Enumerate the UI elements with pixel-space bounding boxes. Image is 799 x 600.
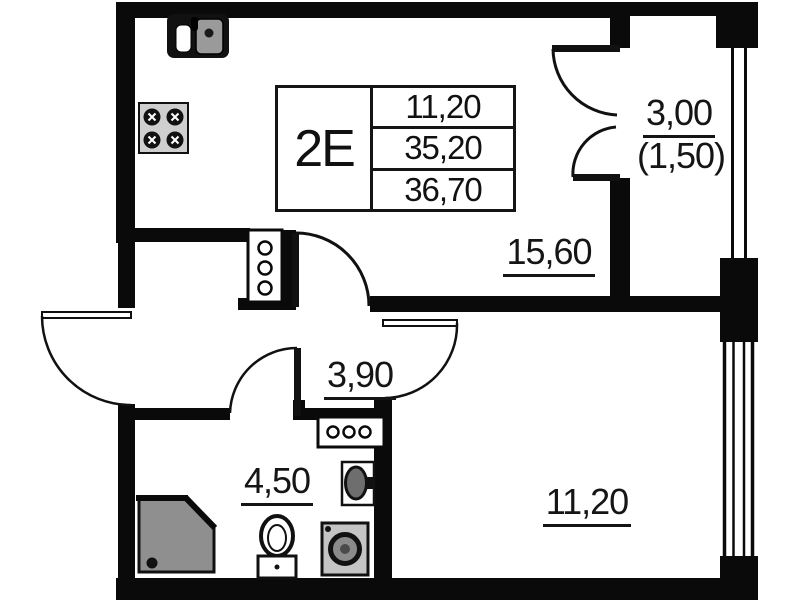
unit-area-value: 11,20 xyxy=(405,88,480,126)
balcony-reduced-area-label: (1,50) xyxy=(626,135,736,177)
bathroom-door xyxy=(230,348,301,416)
hallway-area-value: 3,90 xyxy=(324,354,396,400)
toilet xyxy=(258,516,296,578)
bathroom-door-leaf xyxy=(294,348,301,416)
wall-corner-top-right xyxy=(716,2,758,48)
toilet-bowl-inner xyxy=(268,525,286,551)
balcony-reduced-area-value: (1,50) xyxy=(637,135,725,176)
living-door-leaf xyxy=(292,233,299,307)
living-door-swing-arc xyxy=(295,233,369,306)
toilet-cistern-button xyxy=(275,565,280,570)
wall-left-upper xyxy=(116,2,135,243)
living-kitchen-area-label: 15,60 xyxy=(503,231,595,277)
sink-faucet-icon xyxy=(191,17,198,31)
bedroom-window xyxy=(725,342,753,556)
shower-tray xyxy=(136,497,215,572)
wall-balcony-partition-bottom xyxy=(610,178,630,308)
kitchen-sink xyxy=(167,14,229,58)
wall-balcony-partition-top xyxy=(610,2,630,48)
unit-area-row: 35,20 xyxy=(370,126,513,167)
balcony-double-door xyxy=(552,45,620,181)
wall-left-lower xyxy=(118,404,135,584)
bedroom-door-leaf xyxy=(383,320,457,326)
sink-drainboard xyxy=(176,25,191,52)
entrance-door-swing-arc xyxy=(42,316,131,405)
vent-hole-icon xyxy=(328,427,339,438)
bedroom-area-value: 11,20 xyxy=(543,481,631,527)
floor-plan: 2E 11,20 35,20 36,70 15,60 3,00 (1,50) 3… xyxy=(0,0,799,600)
vent-hole-icon xyxy=(360,427,371,438)
wall-kitchen-hall xyxy=(116,228,250,242)
basin-tap-icon xyxy=(367,477,375,489)
living-kitchen-area-value: 15,60 xyxy=(503,231,594,277)
unit-area-value: 35,20 xyxy=(404,129,482,167)
bathroom-area-value: 4,50 xyxy=(241,460,313,506)
unit-type-cell: 2E xyxy=(278,88,370,209)
shower-drain xyxy=(147,558,158,569)
balcony-door-lower-arc xyxy=(573,127,616,177)
wall-left-mid xyxy=(118,242,135,308)
vent-shaft-vertical xyxy=(248,230,282,302)
unit-area-value: 36,70 xyxy=(404,171,482,209)
vent-hole-icon xyxy=(259,242,272,255)
basin-bowl xyxy=(346,467,367,499)
balcony-door-upper-arc xyxy=(553,49,617,115)
hallway-area-label: 3,90 xyxy=(322,354,398,400)
wall-right-mid-block xyxy=(720,258,758,342)
washer-drum-center xyxy=(340,544,350,554)
bedroom-area-label: 11,20 xyxy=(540,481,634,527)
balcony-area-label: 3,00 xyxy=(637,92,721,138)
wall-bathroom-top-left xyxy=(130,408,230,420)
balcony-door-lower-leaf xyxy=(573,174,620,181)
sink-drain xyxy=(205,29,214,38)
stove xyxy=(139,103,188,153)
vent-hole-icon xyxy=(344,427,355,438)
vent-hole-icon xyxy=(259,262,272,275)
bathroom-door-swing-arc xyxy=(230,348,297,413)
wall-right-bottom-block xyxy=(720,556,758,583)
washer-knob xyxy=(325,526,331,532)
vent-hole-icon xyxy=(259,282,272,295)
unit-area-row: 36,70 xyxy=(370,168,513,209)
balcony-area-value: 3,00 xyxy=(643,92,715,138)
washing-machine xyxy=(322,523,368,575)
entrance-door xyxy=(42,312,131,405)
entrance-door-leaf xyxy=(42,312,131,318)
vent-shaft-horizontal xyxy=(318,417,384,447)
wall-living-bedroom xyxy=(370,296,722,312)
bathroom-area-label: 4,50 xyxy=(238,460,316,506)
wall-bottom xyxy=(116,578,758,600)
unit-type-label: 2E xyxy=(294,119,354,179)
unit-area-column: 11,20 35,20 36,70 xyxy=(370,88,513,209)
unit-area-row: 11,20 xyxy=(370,88,513,126)
washbasin xyxy=(342,462,375,505)
balcony-door-upper-leaf xyxy=(552,45,620,52)
unit-info-table: 2E 11,20 35,20 36,70 xyxy=(275,85,516,212)
living-room-door xyxy=(292,233,369,307)
